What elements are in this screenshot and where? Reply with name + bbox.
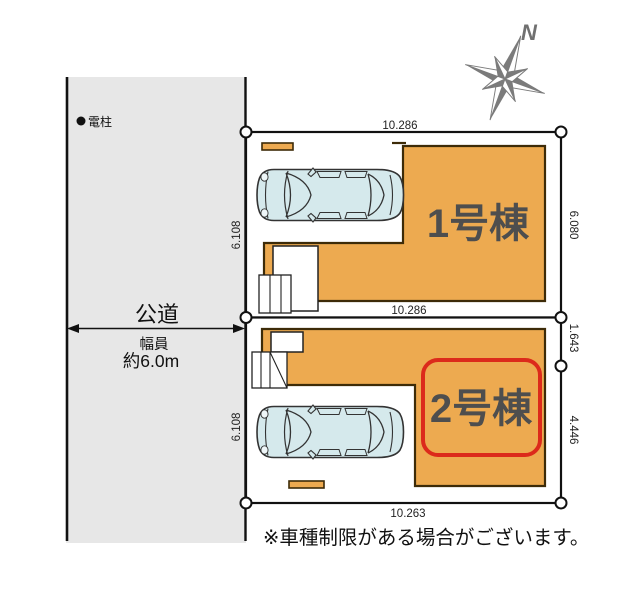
lot-2: 10.286 2号棟 6.108 1.643 4.446 10.263 <box>231 305 579 520</box>
lot-1: 1号棟 10.286 6.108 6.080 <box>231 120 579 318</box>
site-plan-drawing: 電柱 公道 幅員 約6.0m 1号棟 10.286 6.108 6.080 10… <box>0 0 620 609</box>
lot-1-gate-bar <box>262 143 293 150</box>
lot-1-dim-top: 10.286 <box>382 120 417 132</box>
compass-rose-icon: N <box>450 20 560 135</box>
lot-1-entrance-steps <box>259 275 291 313</box>
lot-2-dim-left: 6.108 <box>231 413 243 442</box>
utility-pole-label: 電柱 <box>88 114 112 129</box>
road-width-value: 約6.0m <box>123 351 179 371</box>
site-plan-canvas: 電柱 公道 幅員 約6.0m 1号棟 10.286 6.108 6.080 10… <box>0 0 620 609</box>
road-area: 電柱 公道 幅員 約6.0m <box>66 77 246 543</box>
compass-north-label: N <box>521 20 538 45</box>
lot-2-dim-right-lower: 4.446 <box>567 416 579 445</box>
lot-2-entrance-porch <box>271 332 303 352</box>
lot-1-dim-left: 6.108 <box>231 221 243 250</box>
utility-pole-icon <box>77 117 86 126</box>
lot-2-entrance-steps <box>252 352 287 388</box>
lot-2-dim-bottom: 10.263 <box>390 508 425 520</box>
car-lot-2 <box>257 405 404 459</box>
road-name-label: 公道 <box>135 302 179 327</box>
car-lot-1 <box>257 168 404 222</box>
building-1-label: 1号棟 <box>427 202 530 246</box>
vehicle-restriction-note: ※車種制限がある場合がございます。 <box>263 526 589 549</box>
lot-2-dim-right-upper: 1.643 <box>567 324 579 353</box>
building-2-label: 2号棟 <box>430 387 533 431</box>
lot-2-dim-top: 10.286 <box>391 305 426 317</box>
lot-1-dim-right: 6.080 <box>567 211 579 240</box>
lot-2-gate-bar <box>289 481 324 488</box>
